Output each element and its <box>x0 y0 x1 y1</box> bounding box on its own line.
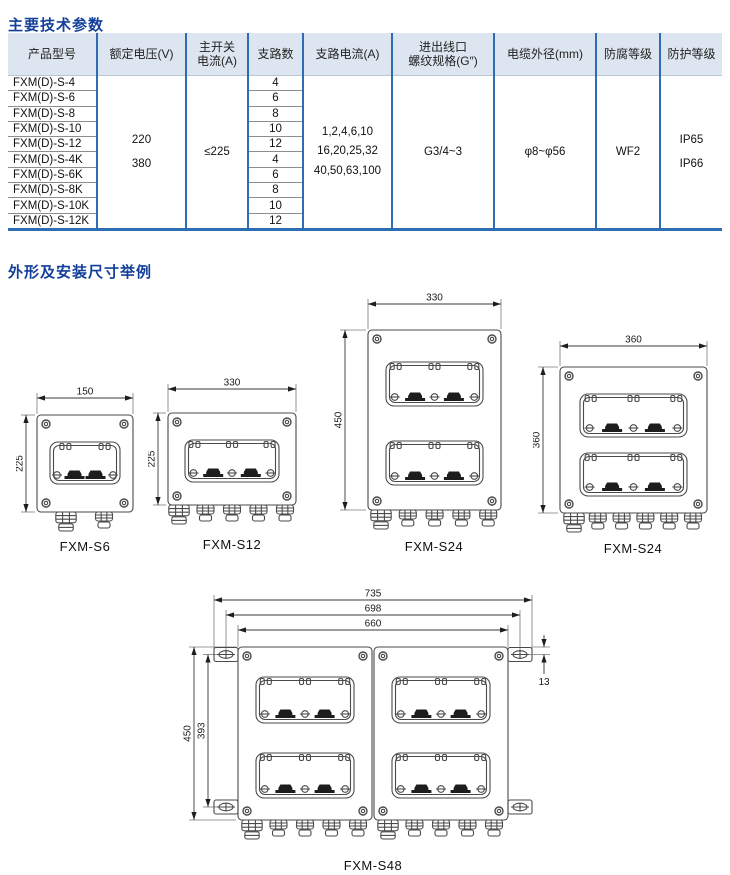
branch-count-cell: 10 <box>249 122 302 137</box>
main-switch-current-cell: ≤225 <box>187 76 247 228</box>
column-cable-od: 电缆外径(mm) φ8~φ56 <box>495 33 597 228</box>
model-cell: FXM(D)-S-8 <box>8 107 96 122</box>
svg-text:330: 330 <box>426 293 443 304</box>
model-cell: FXM(D)-S-10 <box>8 122 96 137</box>
caption-fxm-s6: FXM-S6 <box>40 539 130 554</box>
header-cable-od: 电缆外径(mm) <box>495 33 595 76</box>
branch-count-cell: 4 <box>249 76 302 91</box>
fxm-s48-dimension-drawing: 73569866045039313 <box>178 578 556 846</box>
model-cell: FXM(D)-S-12K <box>8 214 96 228</box>
model-cell: FXM(D)-S-6K <box>8 168 96 183</box>
branch-count-cell: 10 <box>249 198 302 213</box>
model-cell: FXM(D)-S-8K <box>8 183 96 198</box>
fxm-s24-360-dimension-drawing: 360360 <box>533 331 725 556</box>
anticorrosion-cell: WF2 <box>597 76 659 228</box>
header-anticorrosion: 防腐等级 <box>597 33 659 76</box>
fxm-s24-dimension-drawing: 330450 <box>333 285 518 537</box>
column-main-switch-current: 主开关 电流(A) ≤225 <box>187 33 249 228</box>
protection-cell: IP65 IP66 <box>661 76 722 228</box>
rated-voltage-cell: 220 380 <box>98 76 185 228</box>
svg-text:360: 360 <box>533 431 543 448</box>
branch-current-cell: 1,2,4,6,10 16,20,25,32 40,50,63,100 <box>304 76 391 228</box>
header-thread-spec: 进出线口 螺纹规格(G″) <box>393 33 493 76</box>
cable-od-cell: φ8~φ56 <box>495 76 595 228</box>
branch-count-cell: 8 <box>249 183 302 198</box>
thread-spec-cell: G3/4~3 <box>393 76 493 228</box>
model-cell: FXM(D)-S-6 <box>8 91 96 106</box>
svg-text:660: 660 <box>365 619 382 630</box>
drawing-fxm-s48: 73569866045039313 <box>178 578 556 851</box>
branch-count-cell: 12 <box>249 214 302 228</box>
caption-fxm-s24: FXM-S24 <box>389 539 479 554</box>
spec-table: 产品型号 FXM(D)-S-4FXM(D)-S-6FXM(D)-S-8FXM(D… <box>8 33 722 231</box>
branch-count-cell: 8 <box>249 107 302 122</box>
column-rated-voltage: 额定电压(V) 220 380 <box>98 33 187 228</box>
svg-text:393: 393 <box>197 722 208 739</box>
section-title-specs: 主要技术参数 <box>8 14 104 35</box>
svg-text:698: 698 <box>365 604 382 615</box>
column-protection: 防护等级 IP65 IP66 <box>661 33 722 228</box>
branch-count-cell: 4 <box>249 152 302 167</box>
header-main-switch-current: 主开关 电流(A) <box>187 33 247 76</box>
model-cell: FXM(D)-S-4K <box>8 152 96 167</box>
model-cell: FXM(D)-S-10K <box>8 198 96 213</box>
header-model: 产品型号 <box>8 33 96 76</box>
branch-count-list: 46810124681012 <box>249 76 302 228</box>
svg-text:450: 450 <box>334 411 345 428</box>
model-cell: FXM(D)-S-4 <box>8 76 96 91</box>
header-branch-current: 支路电流(A) <box>304 33 391 76</box>
column-anticorrosion: 防腐等级 WF2 <box>597 33 661 228</box>
drawing-fxm-s24: 330450 <box>333 285 518 542</box>
header-branch-count: 支路数 <box>249 33 302 76</box>
drawing-fxm-s6: 150225 <box>16 383 146 553</box>
header-protection: 防护等级 <box>661 33 722 76</box>
column-branch-count: 支路数 46810124681012 <box>249 33 304 228</box>
caption-fxm-s48: FXM-S48 <box>328 858 418 873</box>
svg-text:330: 330 <box>224 378 241 389</box>
svg-text:360: 360 <box>625 335 642 346</box>
branch-count-cell: 12 <box>249 137 302 152</box>
model-list: FXM(D)-S-4FXM(D)-S-6FXM(D)-S-8FXM(D)-S-1… <box>8 76 96 228</box>
svg-text:225: 225 <box>148 450 158 467</box>
caption-fxm-s12: FXM-S12 <box>187 537 277 552</box>
caption-fxm-s24-360: FXM-S24 <box>588 541 678 556</box>
fxm-s12-dimension-drawing: 330225 <box>148 372 316 540</box>
column-thread-spec: 进出线口 螺纹规格(G″) G3/4~3 <box>393 33 495 228</box>
header-rated-voltage: 额定电压(V) <box>98 33 185 76</box>
model-cell: FXM(D)-S-12 <box>8 137 96 152</box>
drawing-fxm-s12: 330225 <box>148 372 316 545</box>
column-branch-current: 支路电流(A) 1,2,4,6,10 16,20,25,32 40,50,63,… <box>304 33 393 228</box>
drawing-fxm-s24-360: 360360 <box>533 331 725 561</box>
branch-count-cell: 6 <box>249 168 302 183</box>
svg-text:225: 225 <box>16 455 26 472</box>
svg-text:735: 735 <box>365 589 382 600</box>
fxm-s6-dimension-drawing: 150225 <box>16 383 146 548</box>
svg-text:150: 150 <box>77 387 94 398</box>
column-model: 产品型号 FXM(D)-S-4FXM(D)-S-6FXM(D)-S-8FXM(D… <box>8 33 98 228</box>
section-title-dimensions: 外形及安装尺寸举例 <box>8 261 152 282</box>
branch-count-cell: 6 <box>249 91 302 106</box>
svg-text:13: 13 <box>538 677 550 688</box>
svg-text:450: 450 <box>183 725 194 742</box>
